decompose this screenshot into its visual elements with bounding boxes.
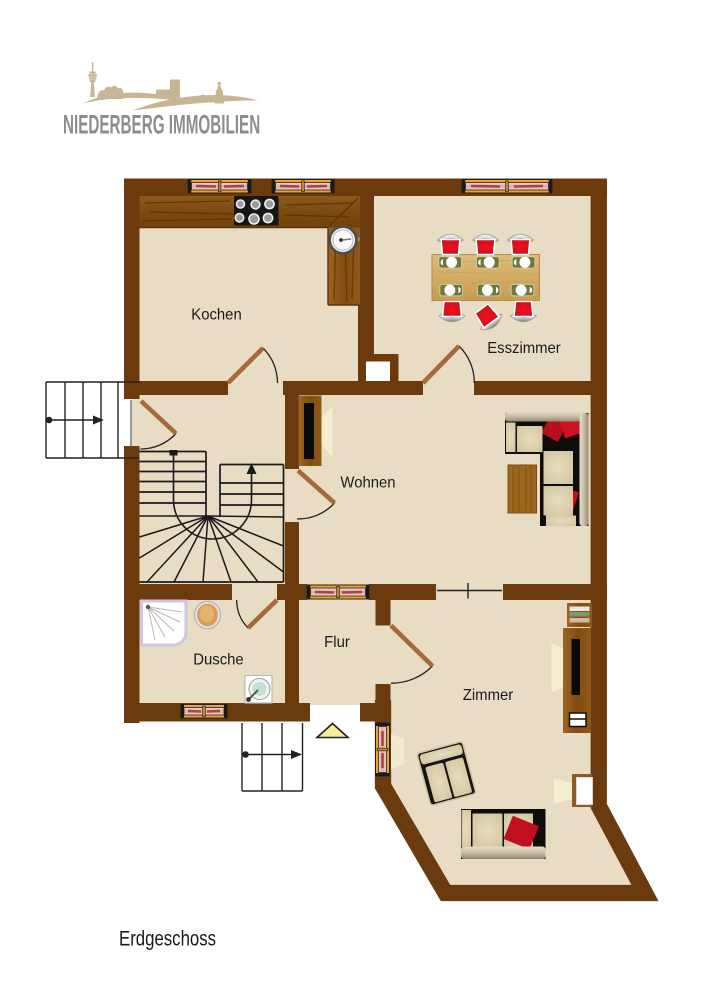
svg-text:Kochen: Kochen xyxy=(191,306,241,324)
svg-text:Dusche: Dusche xyxy=(193,651,243,669)
svg-text:NIEDERBERG IMMOBILIEN: NIEDERBERG IMMOBILIEN xyxy=(63,109,260,140)
svg-text:Zimmer: Zimmer xyxy=(463,687,513,705)
svg-text:Esszimmer: Esszimmer xyxy=(487,340,561,358)
svg-text:Flur: Flur xyxy=(324,634,350,652)
svg-text:Erdgeschoss: Erdgeschoss xyxy=(119,928,216,951)
svg-text:Wohnen: Wohnen xyxy=(340,474,395,492)
